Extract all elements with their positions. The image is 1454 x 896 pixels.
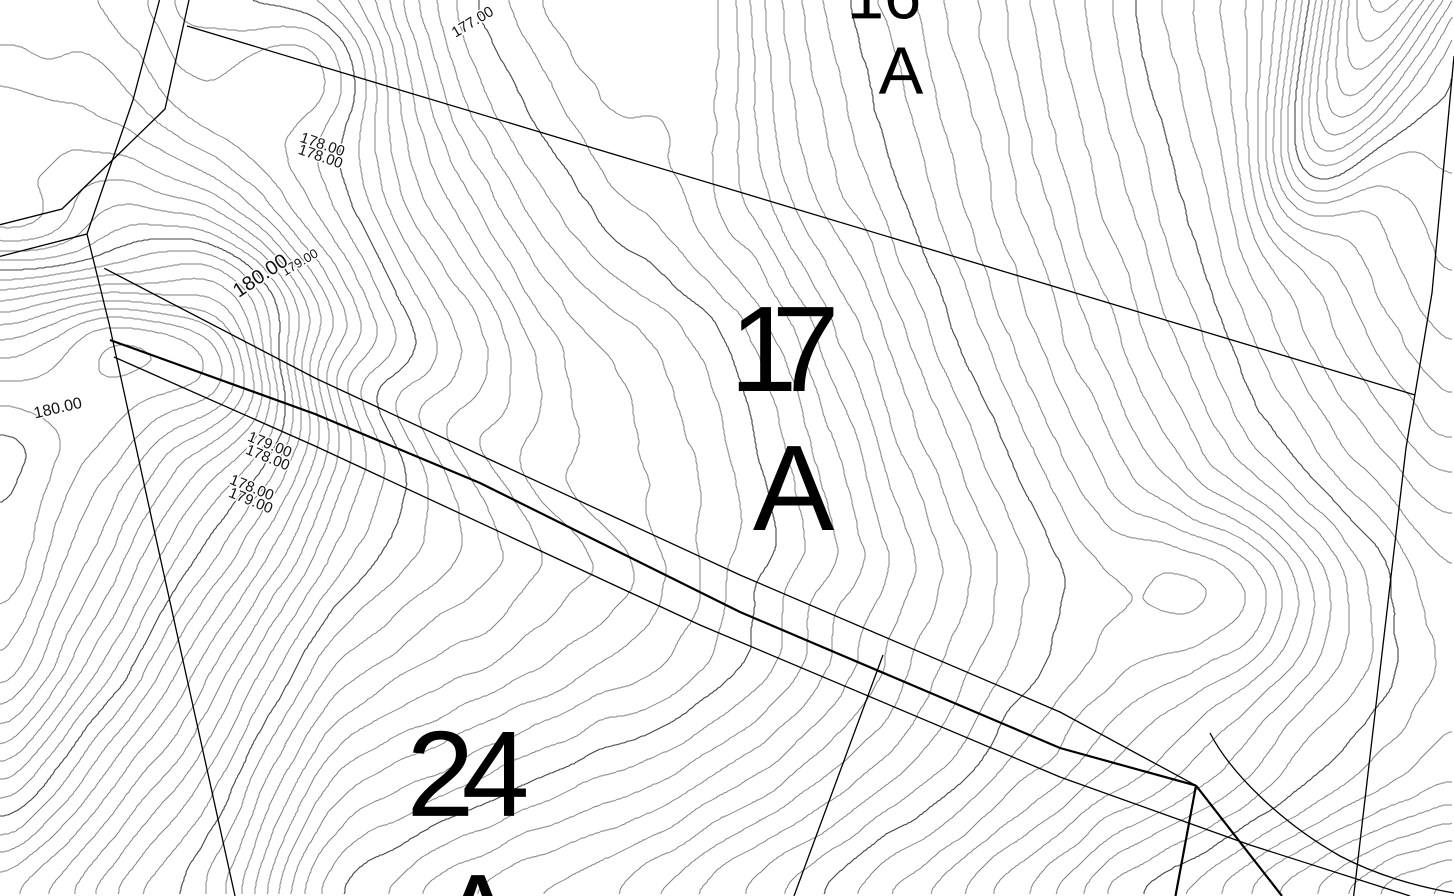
svg-text:24: 24 (406, 706, 529, 842)
svg-text:A: A (879, 34, 924, 109)
svg-text:17: 17 (729, 281, 839, 417)
svg-text:16: 16 (847, 0, 922, 33)
svg-text:180.00: 180.00 (32, 395, 84, 423)
svg-text:A: A (437, 849, 519, 896)
svg-text:A: A (753, 420, 835, 556)
